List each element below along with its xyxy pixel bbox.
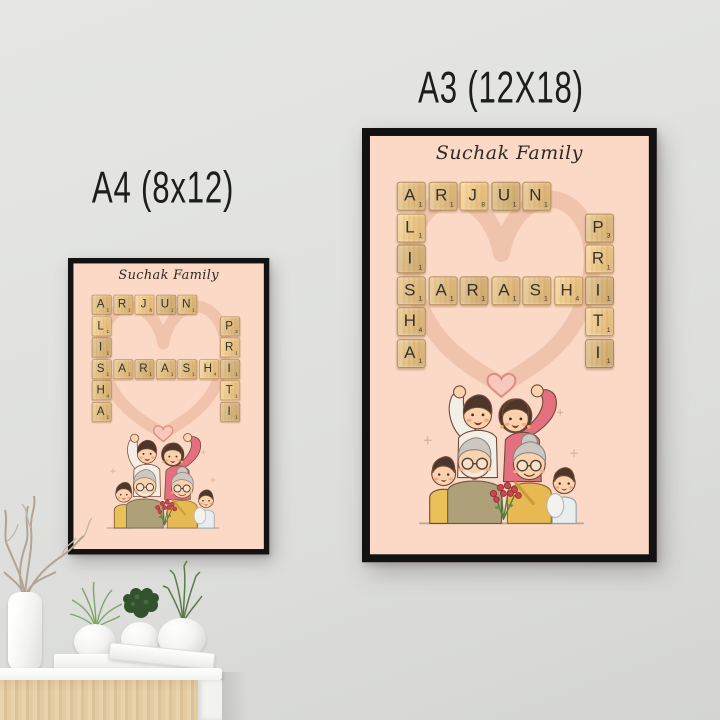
tile-value: 4 xyxy=(576,295,580,302)
scrabble-tile: I1 xyxy=(585,276,614,305)
scrabble-tile: L1 xyxy=(397,213,426,242)
tile-letter: J xyxy=(468,187,476,204)
tile-letter: H xyxy=(561,281,573,298)
tile-letter: A xyxy=(404,344,415,361)
scrabble-tile: S1 xyxy=(92,359,112,379)
tile-letter: R xyxy=(118,298,126,310)
tile-letter: H xyxy=(204,362,212,374)
tile-value: 1 xyxy=(128,308,130,313)
tile-letter: T xyxy=(226,384,233,396)
tile-letter: I xyxy=(99,341,102,353)
tile-value: 1 xyxy=(107,308,109,313)
scrabble-tile: A1 xyxy=(428,276,457,305)
tile-letter: H xyxy=(96,384,104,396)
tile-value: 1 xyxy=(607,327,611,334)
tile-value: 4 xyxy=(214,372,216,377)
tile-letter: I xyxy=(596,344,601,361)
tile-letter: A xyxy=(161,362,169,374)
sideboard-top xyxy=(0,668,222,680)
scrabble-tile: S1 xyxy=(177,359,197,379)
tile-letter: P xyxy=(225,320,233,332)
scrabble-tile: P3 xyxy=(585,213,614,242)
scrabble-tile: R1 xyxy=(135,359,155,379)
tile-value: 4 xyxy=(107,394,109,399)
sideboard-side xyxy=(198,680,222,720)
vase xyxy=(8,592,42,672)
tile-letter: S xyxy=(97,362,105,374)
scrabble-tile: R1 xyxy=(113,295,133,315)
tile-value: 1 xyxy=(150,372,152,377)
tile-letter: U xyxy=(498,187,510,204)
sideboard xyxy=(0,668,222,720)
tile-value: 1 xyxy=(171,308,173,313)
tile-value: 1 xyxy=(544,295,548,302)
family-illustration xyxy=(412,382,591,526)
tile-value: 1 xyxy=(607,358,611,365)
scrabble-tile: P3 xyxy=(220,316,240,336)
scrabble-tile: A1 xyxy=(92,295,112,315)
scrabble-tile: I1 xyxy=(92,338,112,358)
tile-letter: N xyxy=(529,187,541,204)
tile-letter: S xyxy=(404,281,415,298)
tile-letter: S xyxy=(530,281,541,298)
family-illustration xyxy=(102,431,224,530)
scrabble-tile: A1 xyxy=(92,402,112,422)
scrabble-tile: A1 xyxy=(397,182,426,211)
tile-letter: I xyxy=(407,250,412,267)
tile-letter: A xyxy=(97,298,105,310)
tile-value: 1 xyxy=(107,329,109,334)
tile-value: 1 xyxy=(419,264,423,271)
tile-letter: T xyxy=(593,312,603,329)
tile-value: 1 xyxy=(450,201,454,208)
tile-value: 1 xyxy=(544,201,548,208)
tile-letter: J xyxy=(141,298,147,310)
scrabble-tile: U1 xyxy=(491,182,520,211)
tile-value: 1 xyxy=(171,372,173,377)
scrabble-tile: I1 xyxy=(585,339,614,368)
scrabble-tile: I1 xyxy=(220,402,240,422)
scrabble-tile: H4 xyxy=(397,307,426,336)
tile-value: 1 xyxy=(192,308,194,313)
scrabble-tile: I1 xyxy=(220,359,240,379)
size-label-a3: A3 (12X18) xyxy=(392,63,610,113)
scrabble-tile: L1 xyxy=(92,316,112,336)
poster-frame: Suchak Family A1R1J8U1N1L1P3I1R1S1A1R1A1… xyxy=(362,128,657,562)
tile-value: 1 xyxy=(513,295,517,302)
wall: A4 (8x12) A3 (12X18) Suchak Family A1R1J… xyxy=(0,0,720,720)
tile-value: 1 xyxy=(192,372,194,377)
tile-value: 1 xyxy=(107,372,109,377)
tile-value: 1 xyxy=(607,264,611,271)
scrabble-tile: I1 xyxy=(397,245,426,274)
tile-value: 1 xyxy=(128,372,130,377)
tile-letter: U xyxy=(161,298,169,310)
tile-letter: I xyxy=(228,362,231,374)
scrabble-tile: H4 xyxy=(92,380,112,400)
tile-letter: R xyxy=(139,362,147,374)
tile-value: 1 xyxy=(235,351,237,356)
tile-letter: R xyxy=(592,250,604,267)
poster-a3: Suchak Family A1R1J8U1N1L1P3I1R1S1A1R1A1… xyxy=(362,128,658,564)
tile-value: 1 xyxy=(235,372,237,377)
tile-value: 1 xyxy=(419,358,423,365)
tile-value: 4 xyxy=(419,327,423,334)
tile-value: 1 xyxy=(419,233,423,240)
tile-letter: A xyxy=(436,281,447,298)
scrabble-tile: T1 xyxy=(220,380,240,400)
scrabble-tile: N1 xyxy=(522,182,551,211)
tile-value: 3 xyxy=(607,233,611,240)
scrabble-tile: S1 xyxy=(397,276,426,305)
scrabble-tile: A1 xyxy=(491,276,520,305)
sideboard-front xyxy=(0,680,198,720)
scrabble-tile: R1 xyxy=(220,338,240,358)
tile-value: 1 xyxy=(235,415,237,420)
tile-value: 1 xyxy=(450,295,454,302)
scrabble-tile: R1 xyxy=(428,182,457,211)
tile-value: 1 xyxy=(419,295,423,302)
scrabble-tile: H4 xyxy=(199,359,219,379)
tile-letter: L xyxy=(97,320,103,332)
tile-letter: A xyxy=(498,281,509,298)
tile-letter: P xyxy=(592,218,603,235)
scrabble-tile: R1 xyxy=(460,276,489,305)
tile-letter: S xyxy=(182,362,190,374)
tile-value: 1 xyxy=(481,295,485,302)
tile-letter: I xyxy=(596,281,601,298)
scrabble-tile: S1 xyxy=(522,276,551,305)
tile-value: 1 xyxy=(419,201,423,208)
tile-letter: R xyxy=(466,281,478,298)
sideboard-shadow xyxy=(222,672,248,720)
scrabble-tile: A1 xyxy=(156,359,176,379)
size-label-a4: A4 (8x12) xyxy=(54,163,272,213)
tile-value: 1 xyxy=(107,415,109,420)
tile-letter: H xyxy=(404,312,416,329)
tile-letter: A xyxy=(118,362,126,374)
tile-value: 8 xyxy=(481,201,485,208)
poster-title: Suchak Family xyxy=(370,142,649,164)
scrabble-tile: R1 xyxy=(585,245,614,274)
tile-letter: A xyxy=(404,187,415,204)
scrabble-tile: J8 xyxy=(460,182,489,211)
tile-value: 1 xyxy=(235,394,237,399)
tile-letter: R xyxy=(225,341,233,353)
tile-letter: L xyxy=(405,218,414,235)
scrabble-tile: J8 xyxy=(135,295,155,315)
scrabble-tile: T1 xyxy=(585,307,614,336)
tile-letter: N xyxy=(182,298,190,310)
tile-letter: I xyxy=(228,405,231,417)
tile-value: 3 xyxy=(235,329,237,334)
tile-letter: A xyxy=(97,405,105,417)
tile-value: 8 xyxy=(150,308,152,313)
tile-value: 1 xyxy=(607,295,611,302)
tile-letter: R xyxy=(435,187,447,204)
scrabble-tile: N1 xyxy=(177,295,197,315)
scrabble-tile: H4 xyxy=(554,276,583,305)
scrabble-tile: A1 xyxy=(113,359,133,379)
scrabble-tile: A1 xyxy=(397,339,426,368)
tile-value: 1 xyxy=(107,351,109,356)
poster-title: Suchak Family xyxy=(73,268,263,283)
scrabble-tile: U1 xyxy=(156,295,176,315)
tile-value: 1 xyxy=(513,201,517,208)
